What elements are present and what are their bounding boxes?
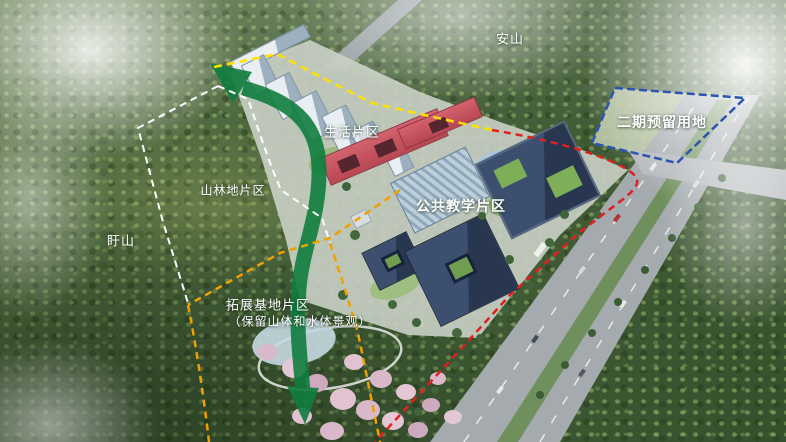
label-zone-teaching: 公共教学片区: [416, 196, 506, 216]
corridor-arrowhead-south: [287, 386, 319, 424]
masterplan-rendering: 安山 盱山 生活片区 二期预留用地 山林地片区 公共教学片区 拓展基地片区 （保…: [0, 0, 786, 442]
label-zone-expansion-note: （保留山体和水体景观）: [228, 313, 371, 330]
label-mountain-xushan: 盱山: [107, 231, 135, 250]
label-zone-living: 生活片区: [324, 122, 380, 141]
label-mountain-anshan: 安山: [496, 29, 524, 48]
annotation-overlay: [0, 0, 786, 442]
label-zone-forest: 山林地片区: [200, 182, 265, 199]
label-zone-expansion: 拓展基地片区: [226, 295, 310, 314]
red-line-boundary: [375, 130, 637, 442]
label-zone-phase2: 二期预留用地: [617, 112, 707, 132]
green-corridor-arrow: [210, 63, 319, 424]
